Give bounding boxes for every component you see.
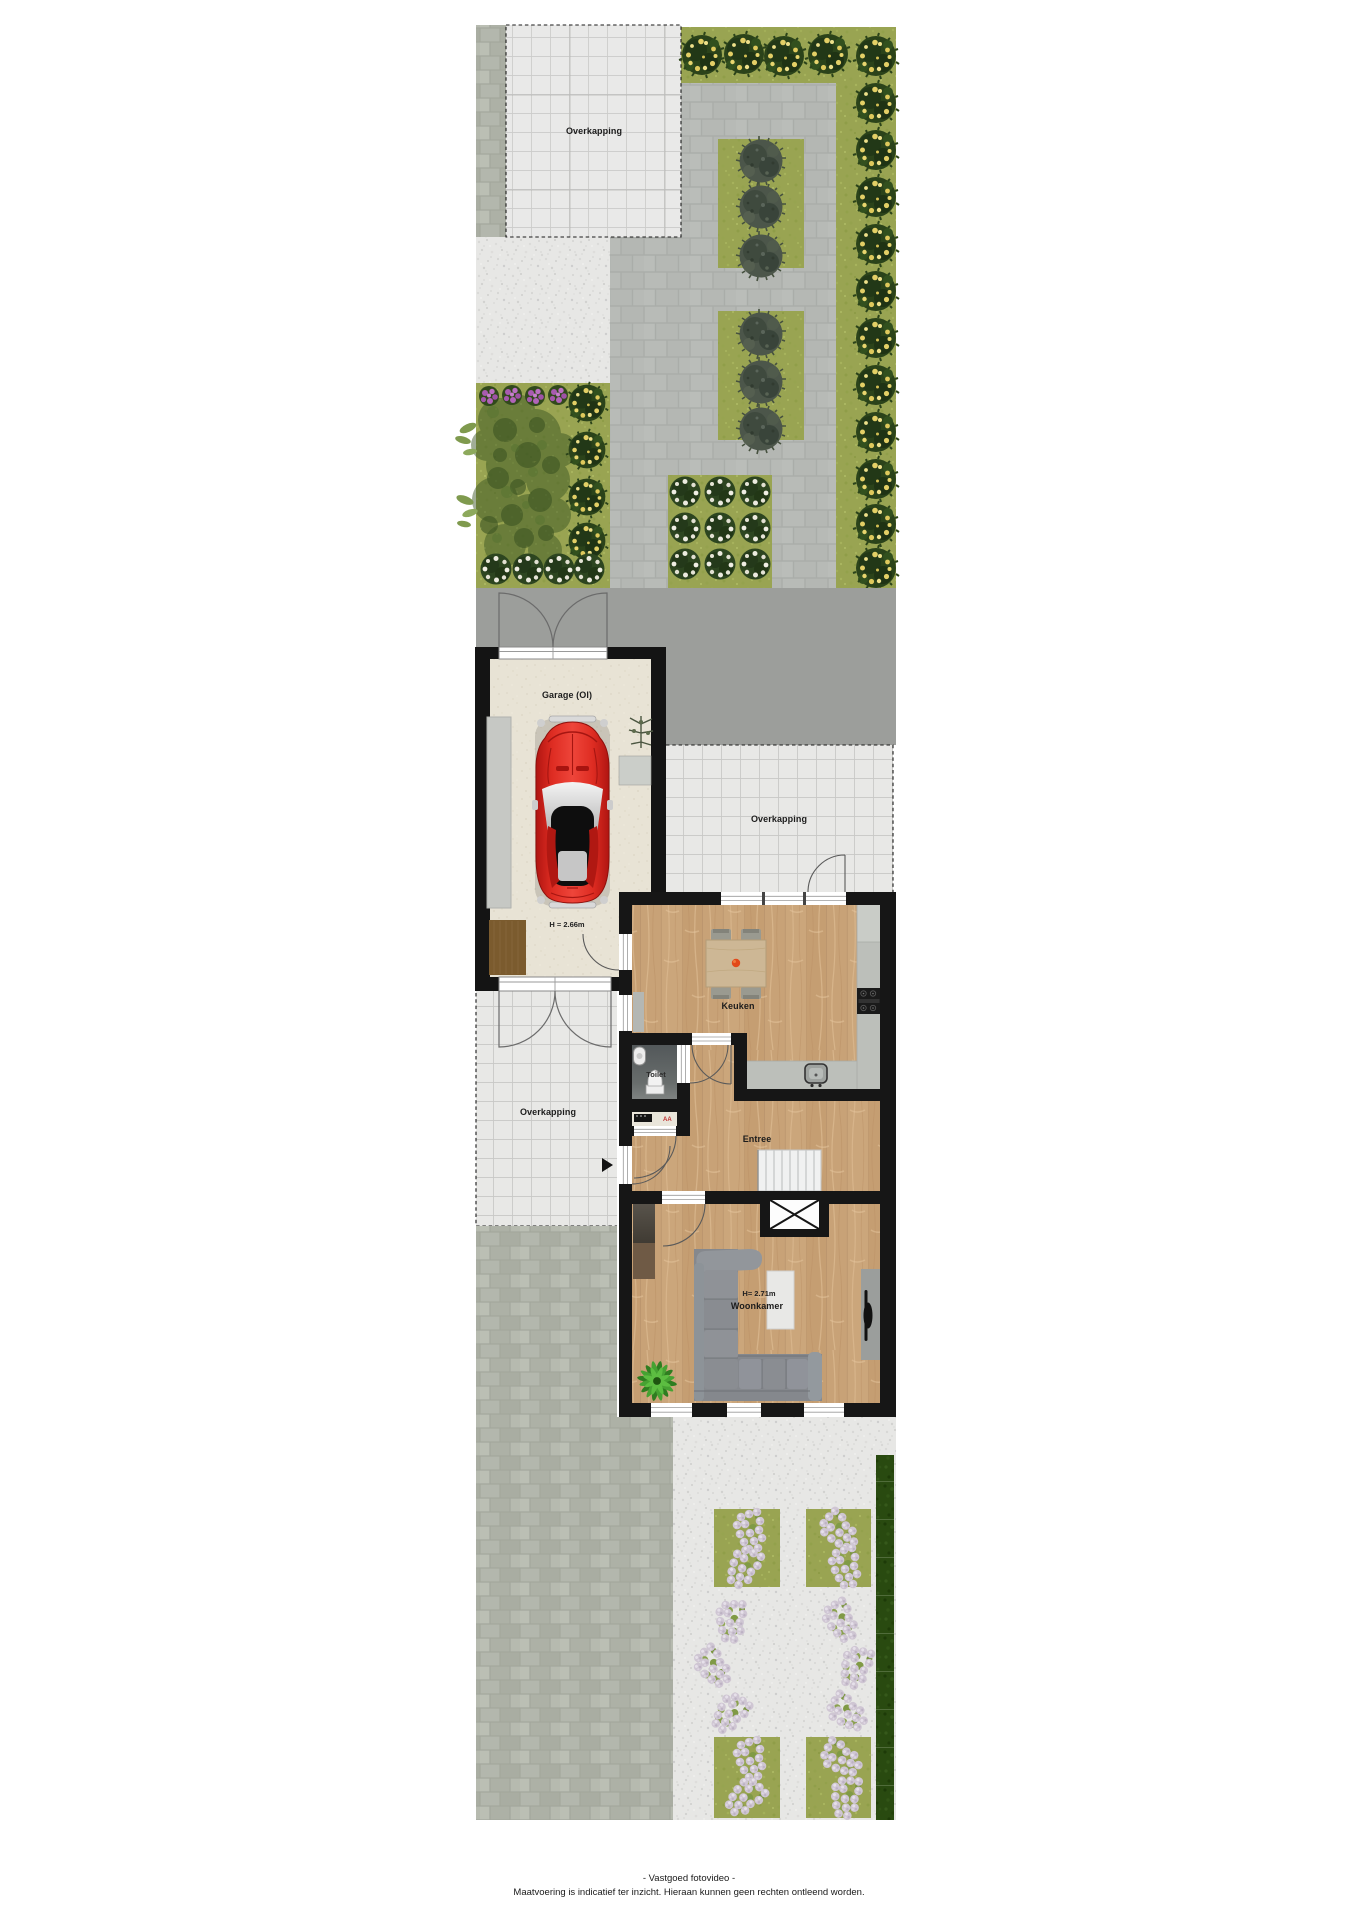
svg-text:AA: AA (663, 1117, 672, 1123)
svg-text:- Vastgoed fotovideo -: - Vastgoed fotovideo - (643, 1873, 735, 1884)
svg-text:H= 2.71m: H= 2.71m (742, 1289, 775, 1298)
svg-text:Overkapping: Overkapping (751, 814, 807, 824)
svg-text:Keuken: Keuken (721, 1001, 754, 1011)
svg-text:Garage (Ol): Garage (Ol) (542, 690, 592, 700)
svg-text:Overkapping: Overkapping (566, 126, 622, 136)
svg-text:H = 2.66m: H = 2.66m (549, 920, 585, 929)
svg-text:Woonkamer: Woonkamer (731, 1301, 784, 1311)
svg-text:Maatvoering is indicatief ter: Maatvoering is indicatief ter inzicht. H… (513, 1887, 864, 1898)
svg-text:Entree: Entree (743, 1134, 772, 1144)
svg-text:Overkapping: Overkapping (520, 1107, 576, 1117)
svg-text:Toilet: Toilet (646, 1070, 666, 1079)
